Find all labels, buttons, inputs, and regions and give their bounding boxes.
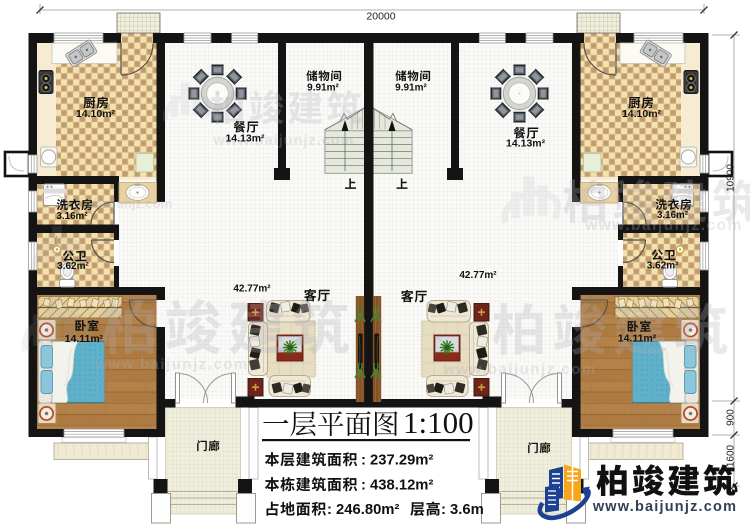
svg-text:900: 900 [726, 409, 737, 426]
svg-text:www.baijunjz.com: www.baijunjz.com [442, 361, 596, 378]
svg-text:3.16m²: 3.16m² [56, 211, 88, 222]
svg-text:www.baijunjz.com: www.baijunjz.com [94, 356, 248, 373]
svg-text:10900: 10900 [726, 164, 737, 192]
svg-text:: 237.29m²: : 237.29m² [361, 453, 433, 469]
svg-text:: 438.12m²: : 438.12m² [361, 478, 433, 494]
svg-text:14.13m²: 14.13m² [506, 138, 546, 150]
svg-text:3.16m²: 3.16m² [657, 210, 689, 221]
svg-text:42.77m²: 42.77m² [233, 284, 271, 295]
svg-text:14.11m²: 14.11m² [618, 333, 657, 345]
svg-text:3.62m²: 3.62m² [57, 261, 89, 272]
svg-text:: 3.6m: : 3.6m [441, 502, 484, 518]
svg-text:9.91m²: 9.91m² [307, 83, 339, 94]
svg-text:14.10m²: 14.10m² [622, 108, 662, 120]
svg-text:3.62m²: 3.62m² [647, 261, 679, 272]
svg-text:42.77m²: 42.77m² [459, 270, 497, 281]
svg-text:14.11m²: 14.11m² [65, 333, 104, 345]
svg-text:9.91m²: 9.91m² [395, 83, 427, 94]
svg-text:14.13m²: 14.13m² [225, 133, 265, 145]
svg-text:: 246.80m²: : 246.80m² [327, 502, 399, 518]
svg-text:www.baijunjz.com: www.baijunjz.com [592, 499, 737, 515]
svg-text:14.10m²: 14.10m² [76, 108, 116, 120]
svg-text:1:100: 1:100 [403, 405, 474, 440]
svg-text:20000: 20000 [366, 11, 395, 23]
svg-text:1600: 1600 [726, 444, 737, 467]
